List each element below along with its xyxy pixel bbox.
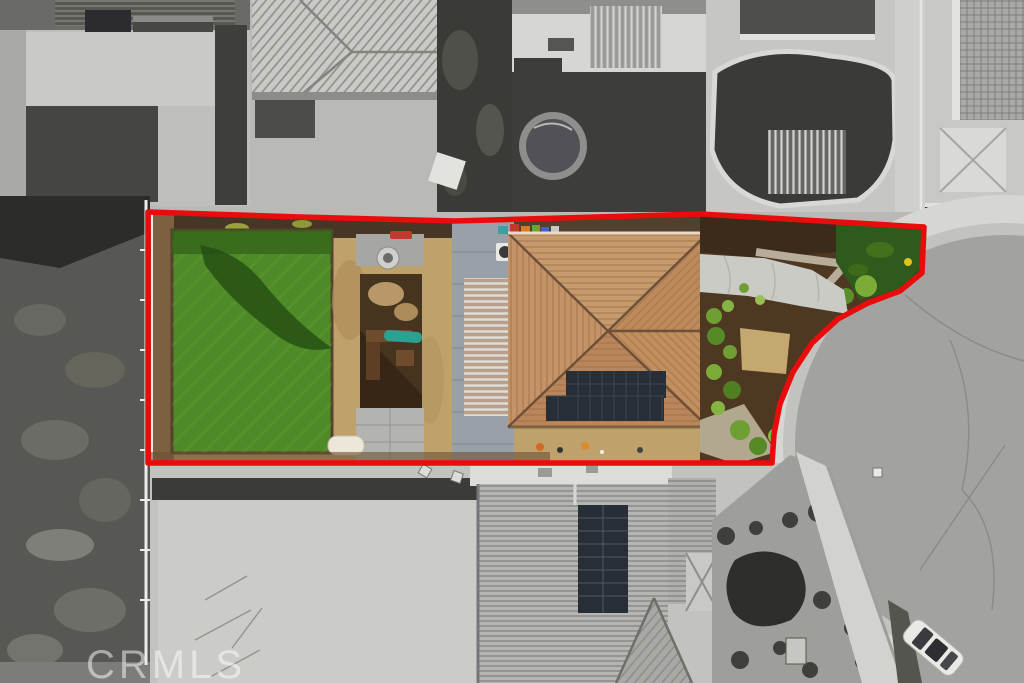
sand-pit [368, 282, 404, 306]
yard-shed [786, 638, 806, 664]
red-bench-toy [390, 231, 412, 239]
neighbor-a-hedge [215, 25, 247, 205]
tree-strip [428, 0, 513, 212]
neighbor-lot-curvy-lawn [706, 0, 926, 212]
aerial-photo: CRMLS [0, 0, 1024, 683]
neighbor-a-lawn [25, 106, 158, 202]
neighbor-d-window [548, 38, 574, 51]
mailbox [873, 468, 882, 477]
side-dirt-strip [150, 212, 174, 464]
main-house-roof [508, 233, 708, 427]
vacant-weedy-lot [0, 196, 152, 683]
neighbor-d-clutter [514, 58, 562, 74]
yellow-toy [904, 258, 912, 266]
neighbor-lot-top-left [0, 0, 250, 206]
bottom-house-eave [470, 466, 672, 486]
solar-array-lower [546, 396, 664, 421]
sand-pit-2 [394, 303, 418, 321]
backyard-lawn [172, 230, 332, 453]
neighbor-lot-pool [512, 0, 706, 212]
gravel-tree [726, 551, 805, 626]
palm-frond-2 [292, 220, 312, 228]
neighbor-e-roof [740, 0, 875, 38]
crmls-watermark: CRMLS [86, 643, 246, 683]
dry-grass-patch [740, 328, 790, 374]
bright-bush [855, 275, 877, 297]
neighbor-b-trees [255, 100, 315, 138]
